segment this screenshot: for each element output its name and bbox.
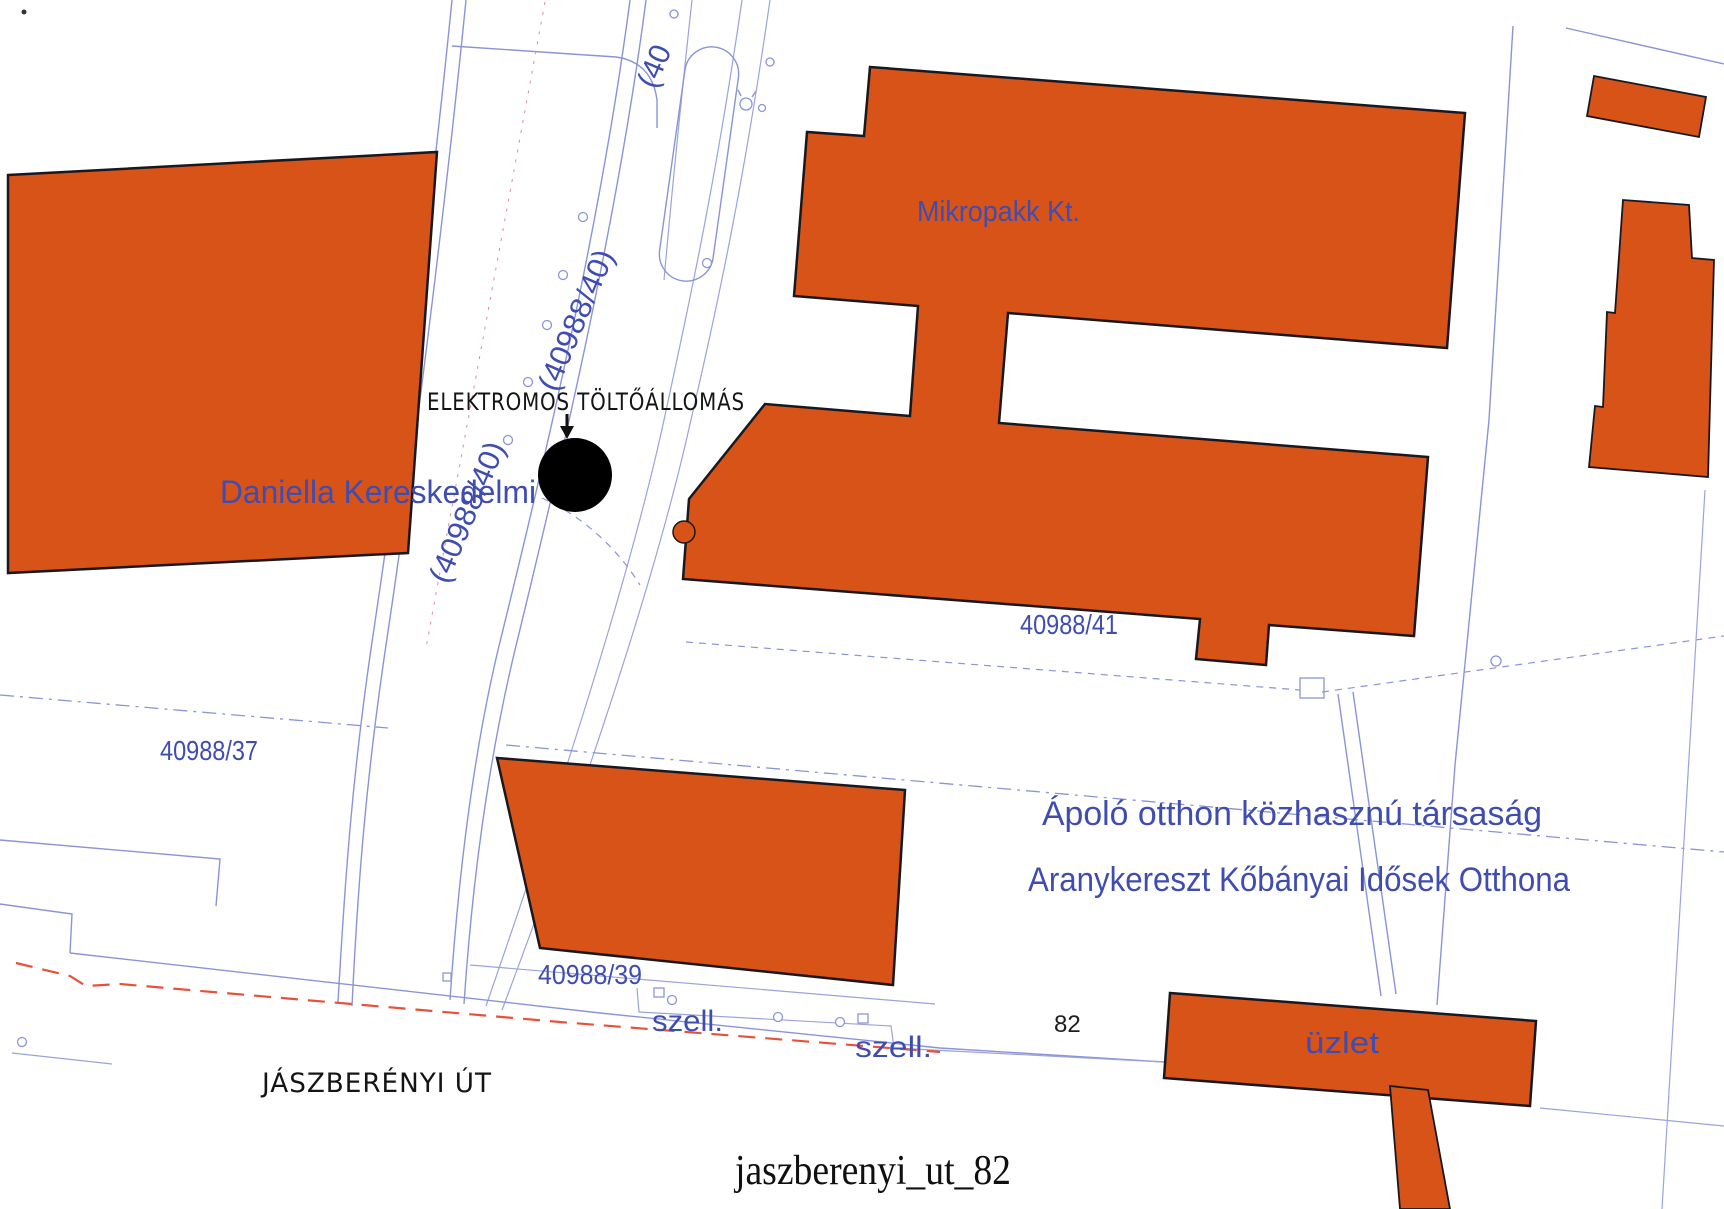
label-parcel-40988-40-b: (40988/40) [423,437,512,588]
charging-station-marker [538,438,612,512]
label-szell-2: szell. [855,1031,932,1064]
label-uzlet: üzlet [1305,1025,1379,1060]
building-corner-dot [673,521,695,543]
building-mikropakk [683,67,1465,665]
traffic-island [656,43,742,284]
label-aranykereszt: Aranykereszt Kőbányai Idősek Otthona [1028,861,1570,899]
building-right-tall [1589,200,1714,477]
map-svg: ELEKTROMOS TÖLTŐÁLLOMÁS Mikropakk Kt. Da… [0,0,1724,1209]
building-top-right [1587,76,1706,137]
charging-station-arrowhead [560,426,574,439]
label-apolo-otthon: Ápoló otthon közhasznú társaság [1042,795,1542,833]
label-parcel-40988-41: 40988/41 [1020,609,1118,640]
label-szell-1: szell. [652,1005,723,1038]
building-40988-39 [497,758,905,985]
label-parcel-40988-37: 40988/37 [160,735,258,766]
label-house-number-82: 82 [1054,1011,1081,1038]
label-mikropakk: Mikropakk Kt. [917,196,1080,228]
handwritten-charging-station-label: ELEKTROMOS TÖLTŐÁLLOMÁS [427,386,745,416]
building-bottom-right-wedge [1390,1086,1450,1209]
handwritten-street-name: JÁSZBERÉNYI ÚT [260,1067,492,1099]
label-parcel-40988-39: 40988/39 [538,959,642,990]
caption-filename: jaszberenyi_ut_82 [733,1148,1011,1194]
cadastral-map-scan: ELEKTROMOS TÖLTŐÁLLOMÁS Mikropakk Kt. Da… [0,0,1724,1209]
label-parcel-40-top: (40 [631,40,678,93]
